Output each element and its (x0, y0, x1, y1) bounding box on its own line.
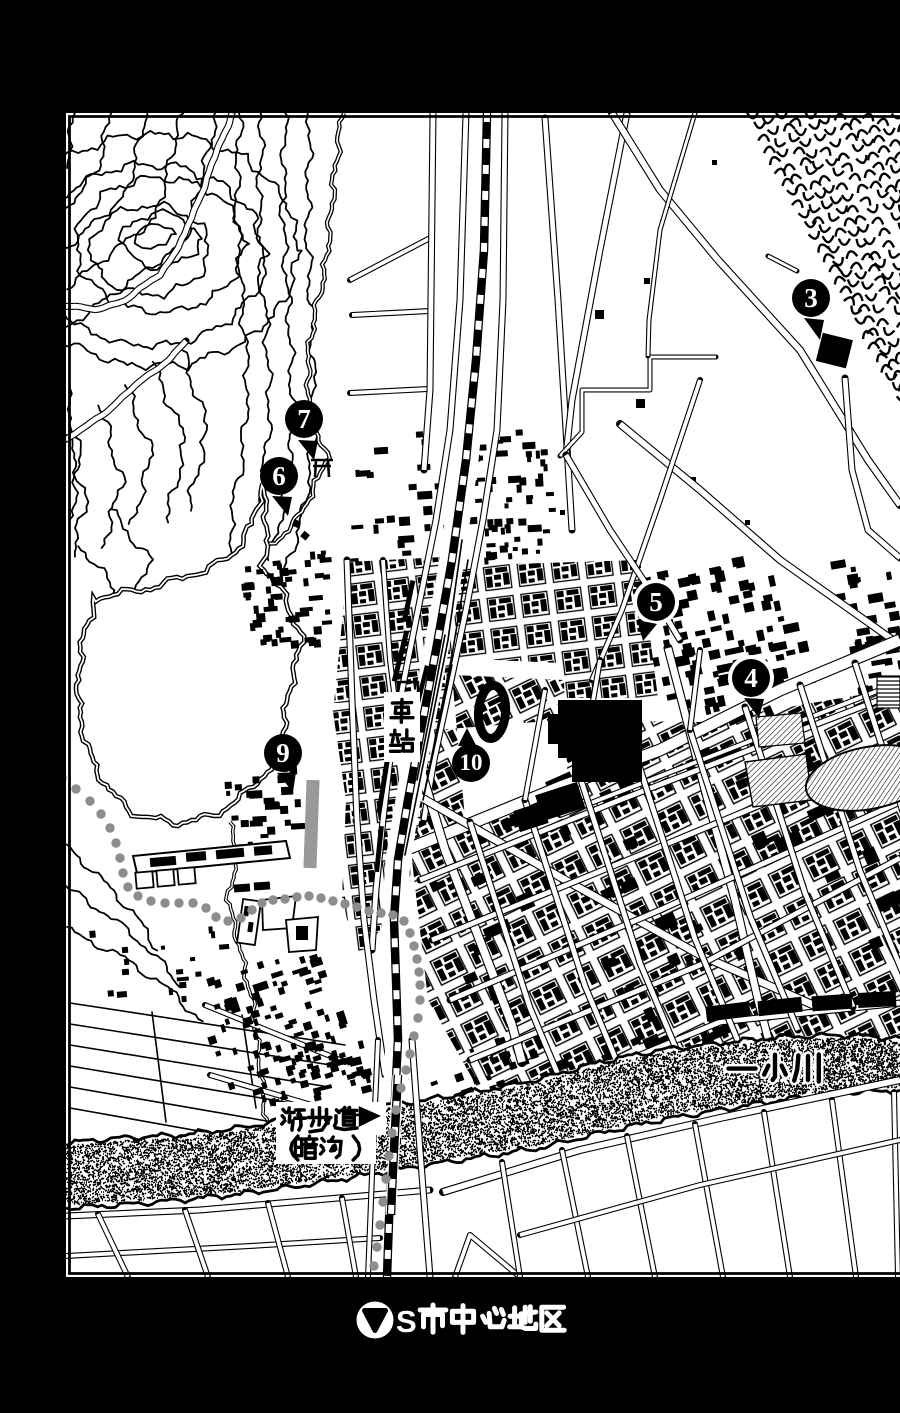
svg-text:3: 3 (804, 283, 818, 313)
svg-text:5: 5 (649, 587, 663, 617)
svg-text:4: 4 (744, 663, 758, 693)
svg-text:6: 6 (272, 461, 286, 491)
svg-text:7: 7 (297, 404, 311, 434)
svg-text:S: S (396, 1304, 417, 1339)
svg-text:10: 10 (460, 750, 483, 775)
svg-text:9: 9 (276, 738, 290, 768)
